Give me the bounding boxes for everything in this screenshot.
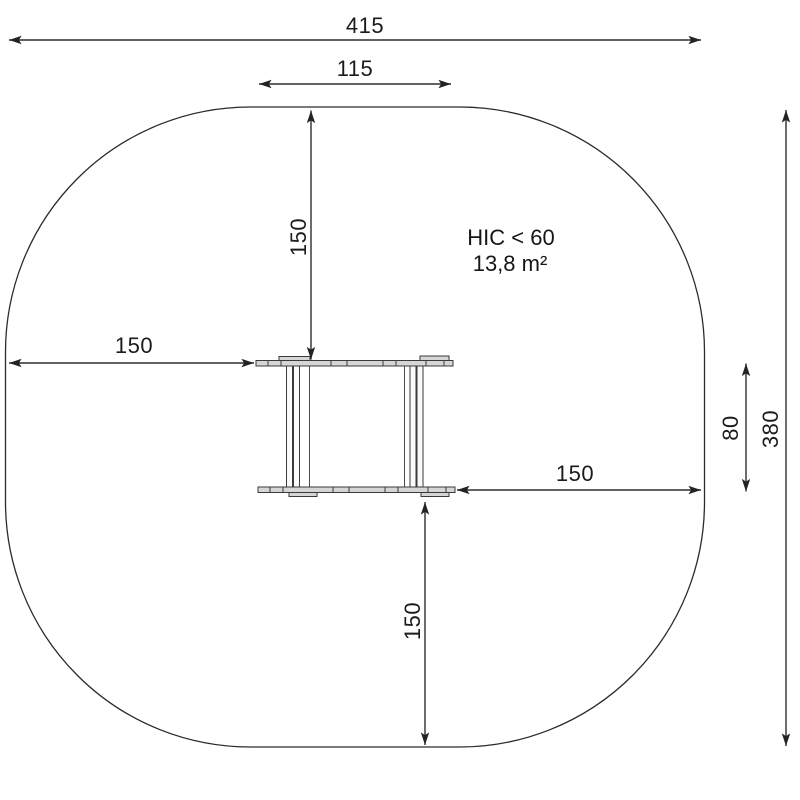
left-rail-inner	[294, 366, 300, 487]
left-rail-outer	[287, 366, 293, 487]
annotation-block: HIC < 60 13,8 m²	[467, 225, 554, 276]
top-plank	[256, 361, 453, 367]
area-annotation: 13,8 m²	[473, 251, 548, 276]
dim-top-clearance: 150	[286, 111, 311, 360]
dim-equipment-depth: 80	[718, 364, 746, 492]
diagram-canvas: 415 115 150 150 150 150 80	[0, 0, 800, 800]
dim-right-clearance-label: 150	[556, 461, 594, 486]
dim-platform-width: 115	[259, 56, 451, 84]
dim-platform-width-label: 115	[337, 56, 374, 81]
hic-annotation: HIC < 60	[467, 225, 554, 250]
dim-left-clearance: 150	[9, 333, 254, 363]
dim-right-clearance: 150	[457, 461, 701, 490]
dim-top-clearance-label: 150	[286, 218, 311, 256]
dim-total-height: 380	[758, 110, 786, 746]
bottom-plank	[258, 487, 455, 493]
dim-total-height-label: 380	[758, 410, 783, 448]
dim-bottom-clearance-label: 150	[400, 602, 425, 640]
dim-left-clearance-label: 150	[115, 333, 153, 358]
safety-zone-boundary	[6, 107, 705, 747]
equipment-plan-view	[256, 356, 455, 497]
right-rail-outer	[417, 366, 423, 487]
right-rail-inner	[410, 366, 416, 487]
dim-equipment-depth-label: 80	[718, 415, 743, 440]
bottom-plate-right	[421, 493, 449, 497]
dim-bottom-clearance: 150	[400, 502, 425, 745]
diagram-page: 415 115 150 150 150 150 80	[0, 0, 800, 800]
bottom-plate-left	[289, 493, 317, 497]
dim-total-width-label: 415	[346, 13, 384, 38]
dim-total-width: 415	[9, 13, 701, 40]
